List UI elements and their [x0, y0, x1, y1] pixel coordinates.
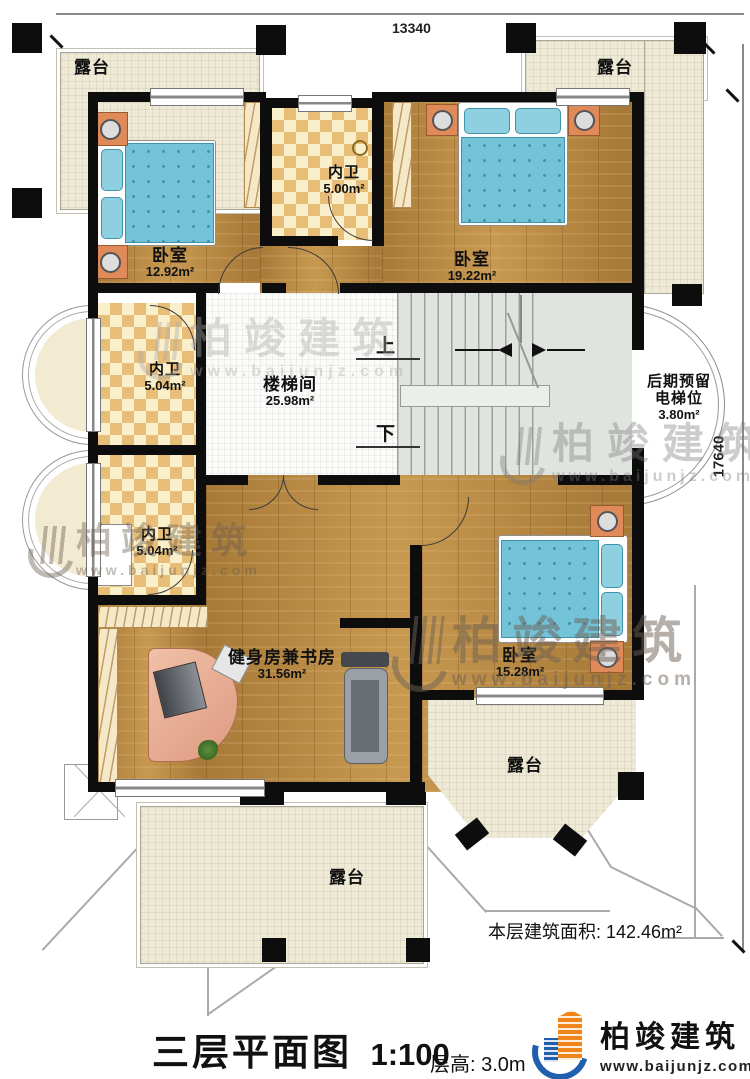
floor-plan: 13340 17640	[0, 0, 750, 1079]
nightstand	[590, 505, 624, 537]
wall	[88, 283, 220, 293]
window	[298, 95, 352, 112]
brand-url: www.baijunjz.com	[600, 1058, 750, 1075]
stair-divider-line	[520, 295, 522, 343]
stair-down-line	[356, 446, 420, 448]
brand-logo-icon	[532, 1008, 594, 1074]
dimension-line-right	[742, 44, 744, 950]
blanket	[461, 137, 565, 223]
blanket	[125, 143, 214, 243]
stair-handrail	[400, 385, 550, 407]
dimension-line-top	[56, 13, 744, 15]
pillow	[464, 108, 510, 134]
bed	[498, 535, 628, 643]
stair-up-line	[356, 358, 420, 360]
room-label-bath-mid: 内卫5.04m²	[120, 362, 210, 393]
floor-area-text: 本层建筑面积: 142.46m²	[488, 918, 682, 944]
pillar	[674, 22, 706, 54]
bay-window-opening	[86, 463, 101, 577]
pillow	[101, 149, 123, 191]
wall	[632, 92, 644, 350]
wardrobe	[392, 102, 412, 208]
wall	[340, 283, 644, 293]
room-label-terrace-br: 露台	[493, 756, 557, 775]
nightstand	[426, 104, 458, 136]
wall	[410, 545, 422, 792]
wall	[558, 475, 644, 485]
pillar	[672, 284, 702, 306]
wall	[340, 618, 422, 628]
room-label-bath-top: 内卫5.00m²	[300, 165, 388, 196]
dimension-width: 13340	[392, 20, 431, 36]
plan-title-block: 三层平面图 1:100	[152, 1022, 450, 1079]
pillow	[601, 592, 623, 636]
room-label-gym: 健身房兼书房31.56m²	[200, 648, 364, 682]
room-label-terrace-tl: 露台	[60, 58, 124, 77]
room-label-bedroom1: 卧室12.92m²	[120, 246, 220, 280]
wall	[262, 283, 286, 293]
plan-title: 三层平面图	[152, 1032, 352, 1073]
wardrobe	[98, 606, 208, 628]
elevator-circle-clip	[644, 293, 750, 585]
stair-arrow-line	[547, 349, 585, 351]
roof-line	[207, 957, 290, 1016]
window	[556, 88, 630, 106]
dimension-height: 17640	[711, 422, 728, 492]
pillow	[601, 544, 623, 588]
wall	[386, 792, 426, 805]
stair-down-label: 下	[376, 424, 395, 445]
brand-name: 柏竣建筑	[600, 1012, 750, 1056]
roof-line	[486, 910, 610, 912]
room-label-elevator: 后期预留 电梯位 3.80m²	[636, 374, 722, 422]
stair-arrow-right-icon	[532, 343, 546, 357]
stair-arrow-left-icon	[498, 343, 512, 357]
stair-arrow-line	[455, 349, 499, 351]
wall	[422, 690, 474, 700]
pillar	[262, 938, 286, 962]
room-label-bedroom3: 卧室15.28m²	[470, 646, 570, 680]
bed	[96, 140, 216, 246]
pillar	[256, 25, 286, 55]
roof-line	[694, 906, 722, 936]
pillar	[406, 938, 430, 962]
floor-height-text: 层高: 3.0m	[430, 1048, 526, 1077]
wall	[88, 595, 206, 605]
brand-block: 柏竣建筑 www.baijunjz.com	[600, 1012, 750, 1075]
window	[476, 687, 604, 705]
window	[115, 779, 265, 797]
room-label-terrace-tr: 露台	[583, 58, 647, 77]
wall	[260, 236, 338, 246]
terrace-top-right-wing	[644, 40, 704, 294]
wall	[265, 782, 425, 792]
wall	[604, 690, 644, 700]
wardrobe	[98, 628, 118, 790]
room-label-stair-hall: 楼梯间25.98m²	[238, 375, 342, 409]
wall	[88, 782, 118, 792]
bay-window-opening	[86, 318, 101, 432]
roof-line	[611, 866, 697, 909]
roof-line	[424, 843, 487, 912]
dimension-tick	[49, 34, 63, 48]
pillar	[506, 23, 536, 53]
pillow	[101, 197, 123, 239]
nightstand	[568, 104, 600, 136]
pillar	[12, 188, 42, 218]
roof-line	[42, 845, 141, 951]
room-label-bath-low: 内卫5.04m²	[112, 527, 202, 558]
pillow	[515, 108, 561, 134]
wall	[632, 448, 644, 700]
nightstand	[590, 641, 624, 673]
pillar	[12, 23, 42, 53]
dimension-tick	[725, 88, 739, 102]
stair-up-label: 上	[376, 336, 395, 357]
room-label-terrace-b: 露台	[315, 868, 379, 887]
floor-drain-icon	[352, 140, 368, 156]
pillar	[618, 772, 644, 800]
wall	[206, 475, 248, 485]
wall	[260, 98, 272, 246]
stair-treads	[397, 293, 537, 475]
window	[150, 88, 244, 106]
room-label-bedroom2: 卧室19.22m²	[422, 250, 522, 284]
wall	[88, 445, 206, 455]
wall	[318, 475, 400, 485]
bed	[458, 102, 568, 226]
blanket	[501, 540, 599, 638]
